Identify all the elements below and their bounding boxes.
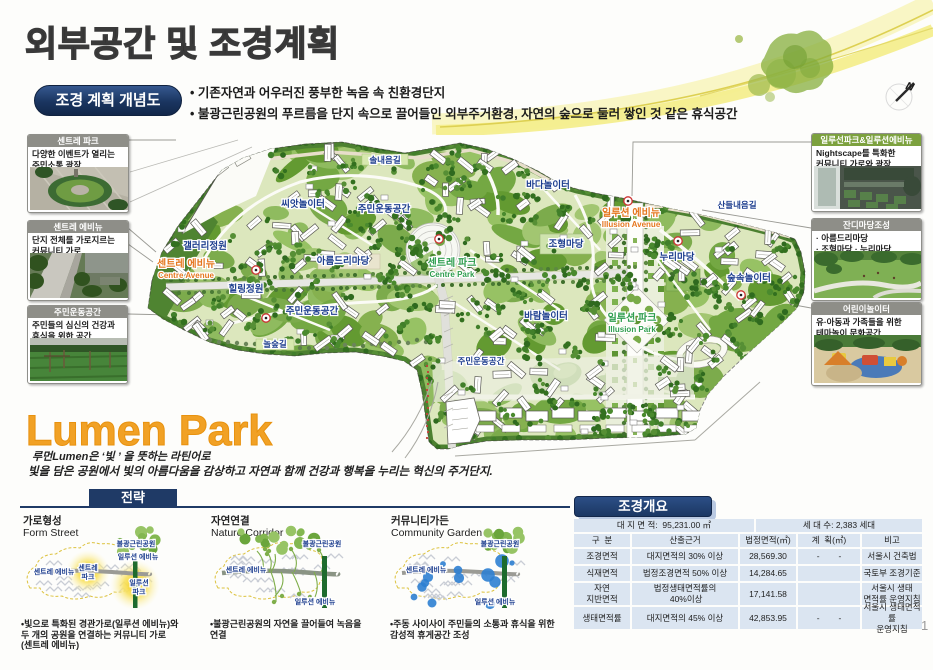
svg-text:솔내음길: 솔내음길 xyxy=(369,155,400,165)
svg-text:힐링정원: 힐링정원 xyxy=(229,283,264,295)
svg-text:일루션 에비뉴: 일루션 에비뉴 xyxy=(118,552,159,561)
svg-text:일루션 파크: 일루션 파크 xyxy=(608,311,657,324)
svg-text:갤러리정원: 갤러리정원 xyxy=(183,240,227,252)
svg-text:일루션 에비뉴: 일루션 에비뉴 xyxy=(475,597,516,606)
svg-text:불광근린공원: 불광근린공원 xyxy=(303,539,342,548)
svg-text:숲속놀이터: 숲속놀이터 xyxy=(727,272,771,284)
svg-text:바람놀이터: 바람놀이터 xyxy=(524,310,568,322)
svg-text:센트레: 센트레 xyxy=(78,563,97,572)
svg-text:일루션 에비뉴: 일루션 에비뉴 xyxy=(602,206,660,219)
svg-text:누리마당: 누리마당 xyxy=(660,251,695,263)
svg-text:아름드리마당: 아름드리마당 xyxy=(317,255,370,267)
svg-text:Centre Park: Centre Park xyxy=(430,270,475,279)
svg-text:센트레 에비뉴: 센트레 에비뉴 xyxy=(157,257,215,270)
svg-text:Illusion Park: Illusion Park xyxy=(608,325,656,334)
svg-text:Centre Avenue: Centre Avenue xyxy=(158,271,214,280)
svg-text:가로형성: 가로형성 xyxy=(23,514,62,527)
svg-text:Community Garden: Community Garden xyxy=(391,527,482,539)
svg-text:센트레 파크: 센트레 파크 xyxy=(428,256,477,269)
svg-text:일루션 에비뉴: 일루션 에비뉴 xyxy=(295,597,336,606)
svg-text:놀숲길: 놀숲길 xyxy=(263,339,287,349)
svg-text:커뮤니티가든: 커뮤니티가든 xyxy=(391,514,449,527)
svg-text:산들내음길: 산들내음길 xyxy=(717,200,756,210)
svg-text:주민운동공간: 주민운동공간 xyxy=(286,305,339,317)
svg-text:주민운동공간: 주민운동공간 xyxy=(358,203,411,215)
svg-text:일루션: 일루션 xyxy=(129,578,148,587)
svg-text:바다놀이터: 바다놀이터 xyxy=(526,179,570,191)
svg-text:Illusion Avenue: Illusion Avenue xyxy=(602,220,661,229)
svg-text:불광근린공원: 불광근린공원 xyxy=(117,539,156,548)
svg-text:씨앗놀이터: 씨앗놀이터 xyxy=(281,198,325,210)
svg-text:주민운동공간: 주민운동공간 xyxy=(458,356,505,366)
svg-text:Form Street: Form Street xyxy=(23,527,79,539)
svg-text:파크: 파크 xyxy=(133,587,146,596)
svg-text:조형마당: 조형마당 xyxy=(549,238,584,250)
svg-text:불광근린공원: 불광근린공원 xyxy=(481,539,520,548)
svg-text:자연연결: 자연연결 xyxy=(211,514,250,527)
svg-text:센트레 에비뉴: 센트레 에비뉴 xyxy=(34,567,75,576)
svg-text:센트레 에비뉴: 센트레 에비뉴 xyxy=(406,565,447,574)
svg-text:센트레 에비뉴: 센트레 에비뉴 xyxy=(226,565,267,574)
svg-text:파크: 파크 xyxy=(82,572,95,581)
